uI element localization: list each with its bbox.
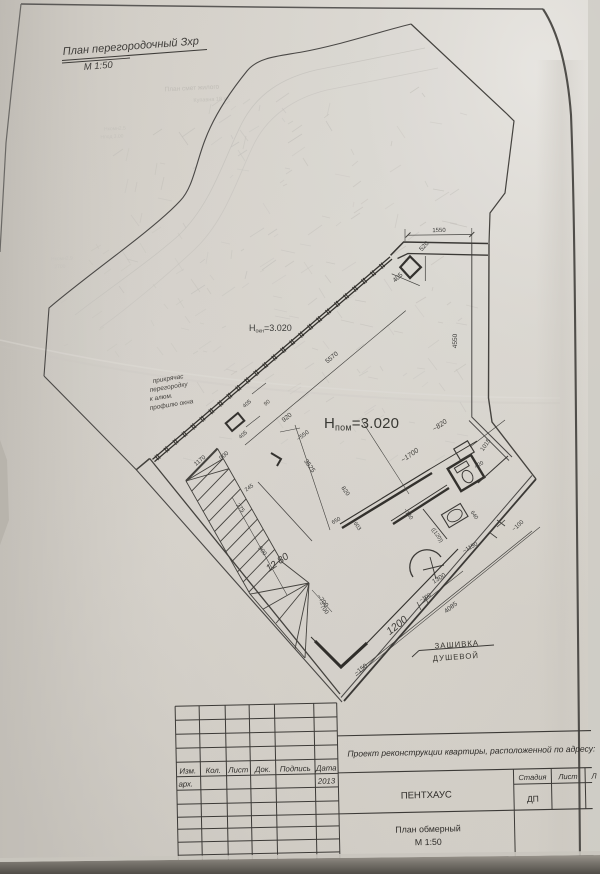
svg-text:Нкомн2.5: Нкомн2.5 <box>104 125 126 132</box>
svg-text:Док.: Док. <box>254 765 271 774</box>
svg-text:Лист: Лист <box>227 765 249 774</box>
svg-text:Стадия: Стадия <box>518 773 546 783</box>
svg-text:Лист: Лист <box>557 772 577 781</box>
svg-text:2700: 2700 <box>54 264 66 271</box>
svg-text:Нокн=3.020: Нокн=3.020 <box>249 323 292 335</box>
svg-text:Подпись: Подпись <box>280 764 311 774</box>
svg-text:М 1:50: М 1:50 <box>83 60 114 73</box>
svg-text:4550: 4550 <box>452 333 459 348</box>
svg-text:Л: Л <box>590 771 597 780</box>
svg-text:Изм.: Изм. <box>179 766 196 775</box>
svg-text:2013: 2013 <box>317 776 336 785</box>
svg-text:М 1:50: М 1:50 <box>415 837 442 848</box>
svg-text:Дата: Дата <box>315 763 337 772</box>
svg-text:Нпод 3.00: Нпод 3.00 <box>100 133 124 140</box>
svg-text:ДП: ДП <box>527 794 539 804</box>
svg-text:Кол.: Кол. <box>206 766 222 775</box>
svg-text:План обмерный: План обмерный <box>395 823 461 834</box>
svg-text:ПЕНТХАУС: ПЕНТХАУС <box>401 789 452 801</box>
svg-text:Нкомн2.9: Нкомн2.9 <box>51 255 73 262</box>
svg-text:1550: 1550 <box>432 228 446 234</box>
svg-text:арх.: арх. <box>178 779 193 788</box>
